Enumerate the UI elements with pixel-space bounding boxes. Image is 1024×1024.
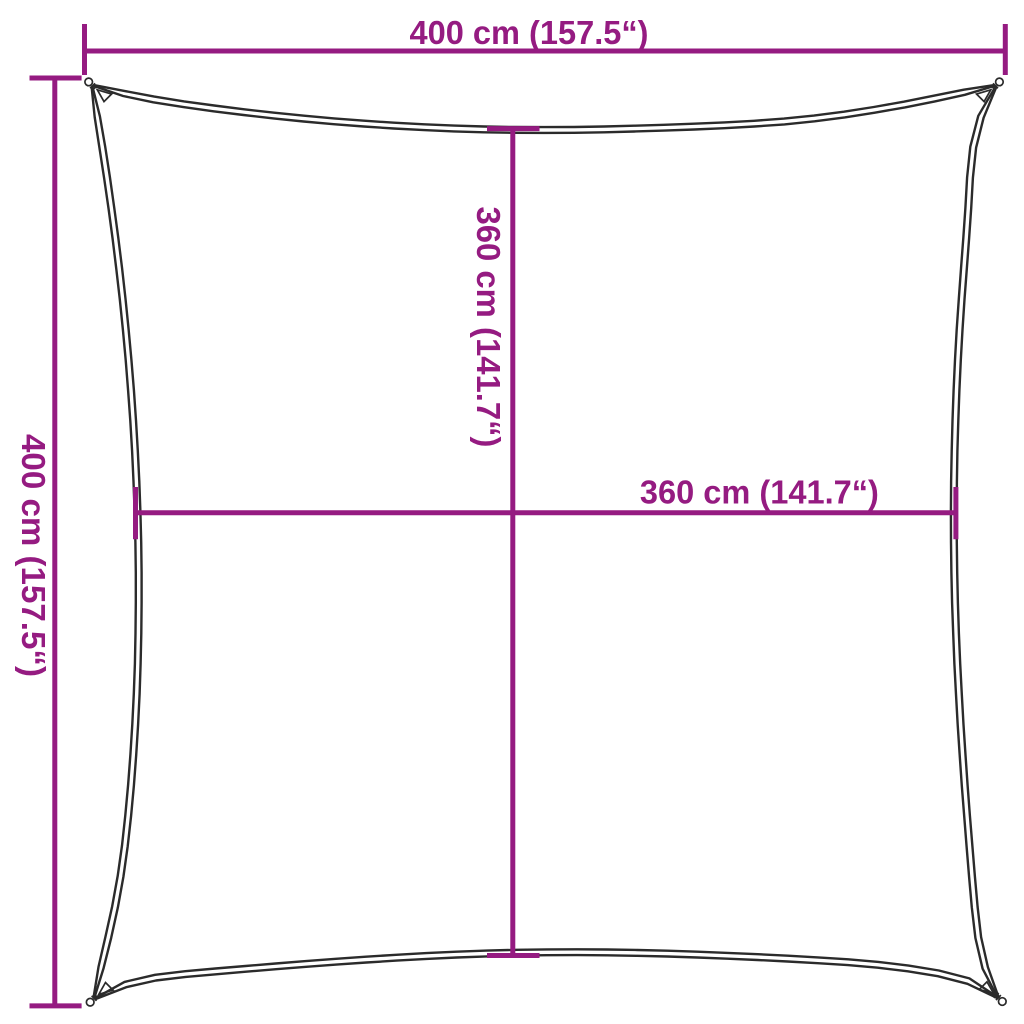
svg-text:400 cm (157.5“): 400 cm (157.5“) [15, 434, 52, 677]
svg-text:360 cm (141.7“): 360 cm (141.7“) [640, 474, 879, 511]
svg-text:400 cm (157.5“): 400 cm (157.5“) [410, 14, 649, 51]
svg-text:360 cm (141.7“): 360 cm (141.7“) [470, 207, 507, 448]
